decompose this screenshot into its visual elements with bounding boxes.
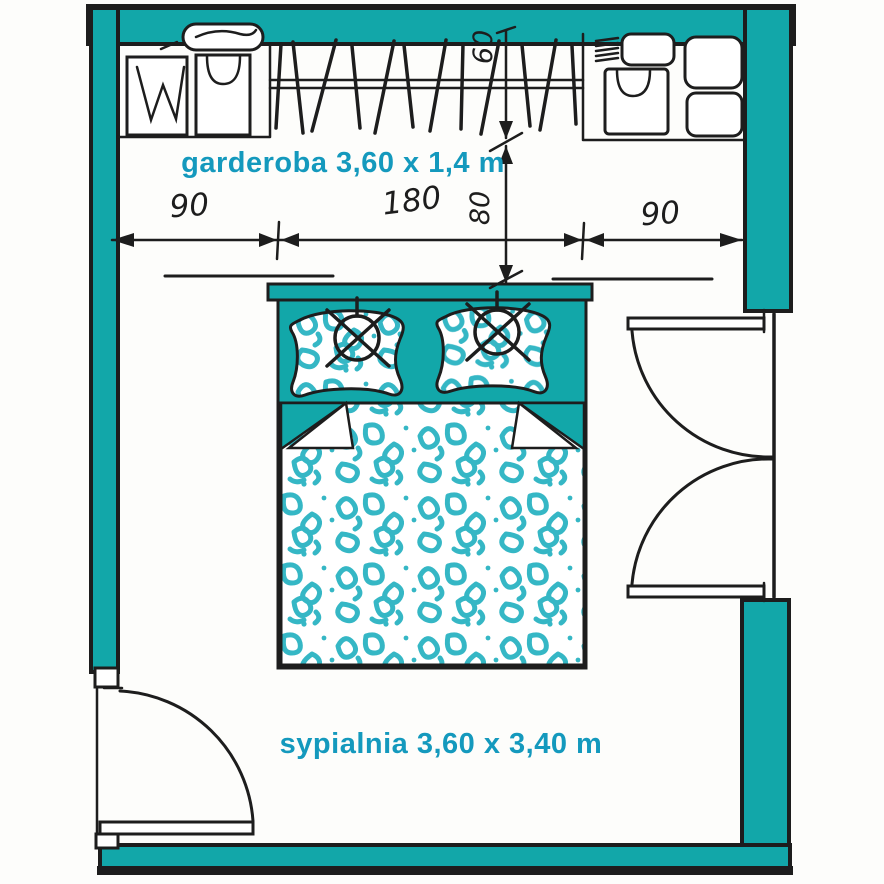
door-leaf-top [628,318,764,329]
folded-shirt-icon [605,69,668,134]
bedroom-label: sypialnia 3,60 x 3,40 m [280,728,603,760]
dim-label-60: 60 [468,30,499,64]
dim-label-90-right: 90 [639,195,681,234]
door-jamb-top [95,668,118,687]
bedroom-entry-door [95,668,253,848]
headboard-partition-wall [268,284,592,300]
storage-box-icon [687,93,742,136]
door-swing-arc [120,691,253,821]
double-door-right [628,310,774,601]
pillow-left [290,311,403,396]
dim-label-180: 180 [380,180,443,223]
right-wall-upper [745,8,791,311]
folded-shirt-icon [196,55,250,135]
right-wall-lower [742,600,789,868]
folded-linen-icon [622,34,674,65]
floor-plan: 90 180 90 60 80 garderoba 3,60 x 1,4 m s… [0,0,884,884]
folded-clothes-icon [127,57,187,135]
floor-plan-page: 90 180 90 60 80 garderoba 3,60 x 1,4 m s… [0,0,884,884]
wardrobe-label: garderoba 3,60 x 1,4 m [181,147,505,179]
dim-label-90-left: 90 [168,187,210,226]
bottom-wall-outer-edge [97,866,793,875]
double-bed [278,292,586,668]
door-swing-arc [632,331,772,457]
pillow-right [436,307,550,394]
wardrobe-right-shelf [583,34,745,140]
storage-box-icon [685,37,742,88]
dim-label-80: 80 [465,191,496,225]
left-wall [91,8,118,672]
door-jamb-bottom [96,834,118,848]
wardrobe-hanging-rod [270,40,583,134]
door-leaf [100,822,253,834]
door-leaf-bottom [628,586,764,597]
door-swing-arc [632,459,772,584]
